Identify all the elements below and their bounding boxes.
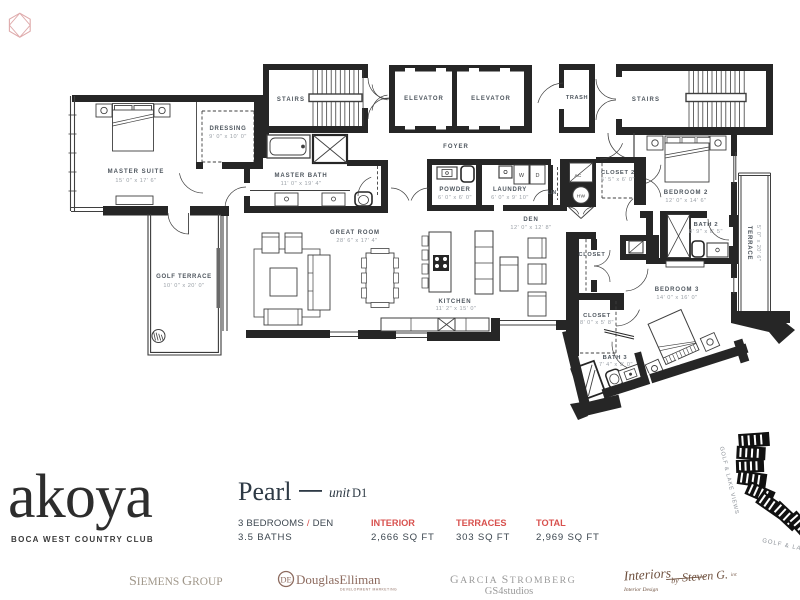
svg-text:8' 0" x 5' 8": 8' 0" x 5' 8"	[580, 320, 614, 326]
svg-text:CLOSET 2: CLOSET 2	[601, 170, 635, 176]
svg-text:ELEVATOR: ELEVATOR	[471, 96, 511, 102]
svg-text:GOLF & LAKE VIEWS: GOLF & LAKE VIEWS	[762, 538, 800, 560]
svg-text:ELEVATOR: ELEVATOR	[404, 96, 444, 102]
svg-text:DEVELOPMENT MARKETING: DEVELOPMENT MARKETING	[340, 588, 397, 592]
svg-text:POWDER: POWDER	[439, 187, 470, 193]
svg-text:15' 0" x 17' 6": 15' 0" x 17' 6"	[115, 178, 156, 184]
svg-text:FOYER: FOYER	[443, 144, 469, 150]
svg-text:12' 0" x 14' 6": 12' 0" x 14' 6"	[665, 198, 706, 204]
svg-text:LIN: LIN	[548, 190, 557, 196]
svg-text:BATH 2: BATH 2	[694, 222, 719, 228]
svg-text:STAIRS: STAIRS	[632, 97, 660, 103]
svg-text:Steven G.: Steven G.	[682, 567, 729, 584]
svg-text:SIEMENS GROUP: SIEMENS GROUP	[129, 574, 223, 589]
svg-text:CLOSET: CLOSET	[583, 313, 611, 319]
svg-text:7' 4" x 9' 0": 7' 4" x 9' 0"	[599, 362, 633, 368]
svg-text:28' 6" x 17' 4": 28' 6" x 17' 4"	[336, 238, 377, 244]
svg-text:D1: D1	[352, 486, 367, 500]
svg-text:akoya: akoya	[8, 463, 152, 531]
svg-text:BOCA WEST COUNTRY CLUB: BOCA WEST COUNTRY CLUB	[11, 535, 154, 544]
svg-text:D: D	[536, 173, 540, 179]
svg-text:10' 0" x 20' 0": 10' 0" x 20' 0"	[163, 283, 204, 289]
svg-text:6' 0" x 9' 10": 6' 0" x 9' 10"	[491, 195, 529, 201]
svg-text:MASTER SUITE: MASTER SUITE	[108, 169, 165, 175]
svg-text:3 BEDROOMS / DEN: 3 BEDROOMS / DEN	[238, 518, 333, 529]
svg-text:DE: DE	[280, 575, 291, 585]
svg-text:2,666 SQ FT: 2,666 SQ FT	[371, 532, 435, 543]
svg-text:MASTER BATH: MASTER BATH	[274, 173, 327, 179]
svg-text:TERRACE: TERRACE	[746, 226, 752, 261]
svg-text:unit: unit	[329, 485, 351, 500]
svg-text:TOTAL: TOTAL	[536, 518, 566, 528]
svg-text:5' 0" x 20' 6": 5' 0" x 20' 6"	[755, 225, 761, 261]
svg-text:Interior Design: Interior Design	[623, 587, 658, 593]
svg-text:GOLF TERRACE: GOLF TERRACE	[156, 274, 212, 280]
svg-text:KITCHEN: KITCHEN	[439, 299, 472, 305]
svg-text:303 SQ FT: 303 SQ FT	[456, 532, 510, 543]
svg-text:DEN: DEN	[523, 217, 538, 223]
svg-text:GS4studios: GS4studios	[485, 586, 533, 597]
svg-text:BEDROOM 2: BEDROOM 2	[664, 190, 708, 196]
svg-text:inc: inc	[731, 573, 738, 578]
svg-text:DouglasElliman: DouglasElliman	[296, 572, 381, 587]
svg-text:HW: HW	[577, 194, 586, 200]
svg-text:STAIRS: STAIRS	[277, 97, 305, 103]
svg-text:by: by	[671, 576, 680, 586]
svg-text:TERRACES: TERRACES	[456, 518, 507, 528]
svg-text:Interiors: Interiors	[622, 565, 671, 583]
svg-text:AC: AC	[574, 173, 581, 179]
svg-text:5' 5" x 6' 0": 5' 5" x 6' 0"	[601, 177, 635, 183]
svg-text:DRESSING: DRESSING	[210, 126, 247, 132]
svg-text:Pearl: Pearl	[238, 477, 291, 506]
svg-text:INTERIOR: INTERIOR	[371, 518, 415, 528]
svg-text:GARCIA STROMBERG: GARCIA STROMBERG	[450, 572, 576, 586]
svg-text:8' 9" x 8' 5": 8' 9" x 8' 5"	[689, 229, 723, 235]
svg-text:11' 0" x 19' 4": 11' 0" x 19' 4"	[281, 181, 322, 187]
svg-text:11' 2" x 15' 0": 11' 2" x 15' 0"	[436, 306, 477, 312]
svg-text:CLOSET: CLOSET	[579, 252, 606, 258]
svg-text:GREAT ROOM: GREAT ROOM	[330, 230, 380, 236]
svg-text:6' 0" x 6' 0": 6' 0" x 6' 0"	[438, 195, 472, 201]
svg-text:9' 0" x 10' 0": 9' 0" x 10' 0"	[209, 134, 247, 140]
svg-text:3.5 BATHS: 3.5 BATHS	[238, 532, 292, 543]
svg-text:LAUNDRY: LAUNDRY	[493, 187, 527, 193]
svg-text:BEDROOM 3: BEDROOM 3	[655, 287, 699, 293]
svg-text:14' 0" x 16' 0": 14' 0" x 16' 0"	[656, 295, 697, 301]
svg-text:W: W	[519, 173, 525, 179]
svg-text:2,969 SQ FT: 2,969 SQ FT	[536, 532, 600, 543]
svg-text:TRASH: TRASH	[566, 95, 588, 101]
svg-text:12' 0" x 12' 8": 12' 0" x 12' 8"	[510, 225, 551, 231]
